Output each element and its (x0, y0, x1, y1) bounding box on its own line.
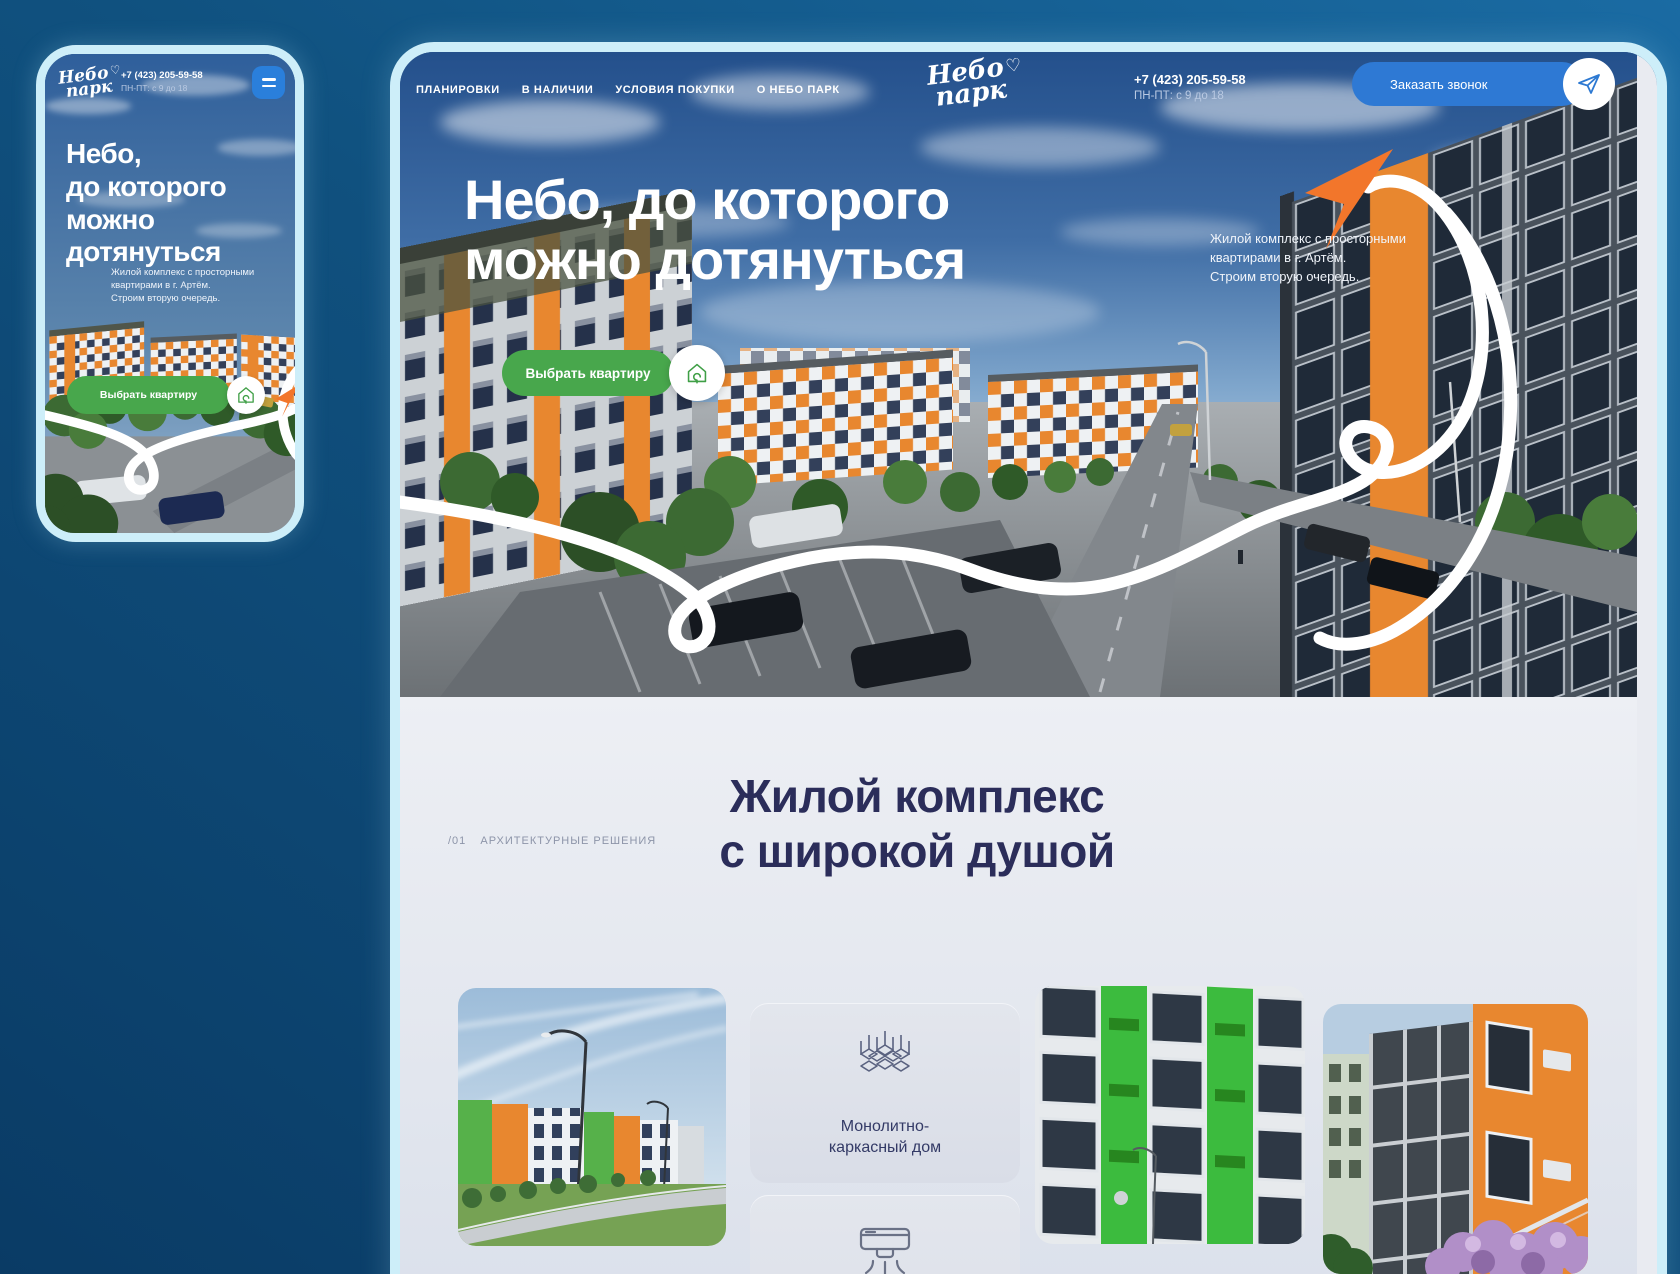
nav-o-nebo-park[interactable]: О НЕБО ПАРК (757, 84, 840, 96)
work-hours: ПН-ПТ: с 9 до 18 (1134, 90, 1246, 102)
nav-planirovki[interactable]: ПЛАНИРОВКИ (416, 84, 500, 96)
feature-title: Монолитно- каркасный дом (750, 1116, 1020, 1159)
gallery-photo-orange-corner (1323, 1004, 1588, 1274)
logo[interactable]: Небо♡ парк (926, 54, 1026, 109)
contact-block: +7 (423) 205-59-58 ПН-ПТ: с 9 до 18 (121, 70, 203, 93)
main-nav: ПЛАНИРОВКИ В НАЛИЧИИ УСЛОВИЯ ПОКУПКИ О Н… (416, 84, 840, 96)
house-icon (684, 360, 710, 386)
gallery-photo-green-facade (1035, 986, 1305, 1244)
feature-card-monolith: Монолитно- каркасный дом (750, 1003, 1020, 1183)
hamburger-icon (262, 78, 276, 80)
air-conditioner-icon (853, 1221, 917, 1274)
mobile-subtitle: Жилой комплекс с просторными квартирами … (111, 266, 254, 305)
mobile-headline: Небо, до которого можно дотянуться (66, 138, 226, 269)
desktop-mockup: ПЛАНИРОВКИ В НАЛИЧИИ УСЛОВИЯ ПОКУПКИ О Н… (390, 42, 1667, 1274)
desktop-screen: ПЛАНИРОВКИ В НАЛИЧИИ УСЛОВИЯ ПОКУПКИ О Н… (400, 52, 1657, 1274)
section-index: /01 (448, 835, 466, 847)
house-icon (235, 384, 257, 406)
phone-number[interactable]: +7 (423) 205-59-58 (1134, 72, 1246, 87)
logo[interactable]: Небо♡ парк (57, 64, 123, 100)
mobile-screen: Небо♡ парк +7 (423) 205-59-58 ПН-ПТ: с 9… (45, 54, 295, 533)
heart-icon: ♡ (1004, 54, 1022, 77)
mobile-mockup: Небо♡ парк +7 (423) 205-59-58 ПН-ПТ: с 9… (36, 45, 304, 542)
order-call-button[interactable]: Заказать звонок (1352, 62, 1584, 106)
feature-card-ac (750, 1195, 1020, 1274)
hero-section: ПЛАНИРОВКИ В НАЛИЧИИ УСЛОВИЯ ПОКУПКИ О Н… (400, 52, 1637, 697)
gallery-photo-complex-street (458, 988, 726, 1246)
hero-cta-row: Выбрать квартиру (502, 345, 725, 401)
choose-apartment-button[interactable]: Выбрать квартиру (502, 350, 674, 396)
menu-button[interactable] (252, 66, 285, 99)
house-button[interactable] (669, 345, 725, 401)
desktop-header: ПЛАНИРОВКИ В НАЛИЧИИ УСЛОВИЯ ПОКУПКИ О Н… (400, 52, 1637, 172)
contact-block: +7 (423) 205-59-58 ПН-ПТ: с 9 до 18 (1134, 72, 1246, 102)
house-button[interactable] (227, 376, 265, 414)
hero-headline: Небо, до которого можно дотянуться (464, 170, 965, 290)
send-button[interactable] (1563, 58, 1615, 110)
nav-usloviya-pokupki[interactable]: УСЛОВИЯ ПОКУПКИ (615, 84, 734, 96)
paper-plane-icon (1576, 71, 1602, 97)
nav-v-nalichii[interactable]: В НАЛИЧИИ (522, 84, 594, 96)
phone-number[interactable]: +7 (423) 205-59-58 (121, 70, 203, 81)
work-hours: ПН-ПТ: с 9 до 18 (121, 83, 203, 93)
monolith-frame-icon (853, 1027, 917, 1079)
heart-icon: ♡ (109, 62, 121, 77)
architecture-section: /01 АРХИТЕКТУРНЫЕ РЕШЕНИЯ Жилой комплекс… (400, 697, 1637, 1274)
section-title: Жилой комплекс с широкой душой (597, 769, 1237, 879)
hero-subtitle: Жилой комплекс с просторными квартирами … (1210, 230, 1406, 287)
hamburger-icon (262, 85, 276, 87)
choose-apartment-button[interactable]: Выбрать квартиру (67, 376, 230, 414)
page-background: Небо♡ парк +7 (423) 205-59-58 ПН-ПТ: с 9… (0, 0, 1680, 1274)
mobile-cta-row: Выбрать квартиру (67, 376, 265, 414)
